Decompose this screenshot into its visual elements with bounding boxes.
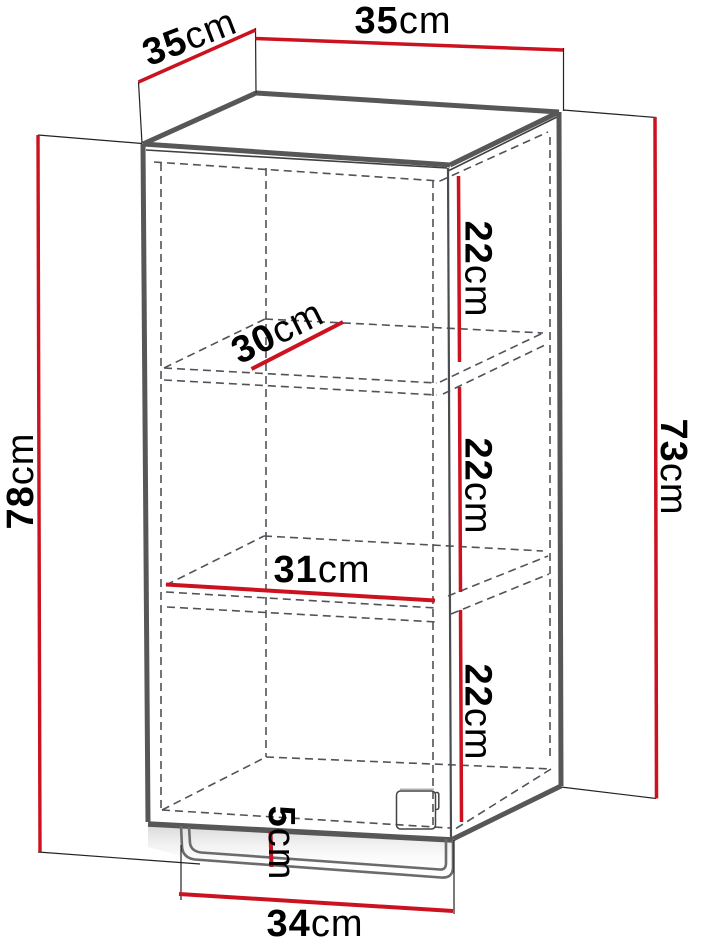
svg-text:22cm: 22cm <box>457 438 499 535</box>
svg-text:22cm: 22cm <box>457 664 499 761</box>
svg-text:22cm: 22cm <box>457 221 499 318</box>
svg-text:31cm: 31cm <box>274 549 371 591</box>
svg-text:5cm: 5cm <box>260 806 302 881</box>
svg-text:78cm: 78cm <box>0 433 42 530</box>
svg-text:35cm: 35cm <box>355 0 452 42</box>
svg-text:73cm: 73cm <box>652 419 694 516</box>
svg-text:34cm: 34cm <box>267 903 364 945</box>
